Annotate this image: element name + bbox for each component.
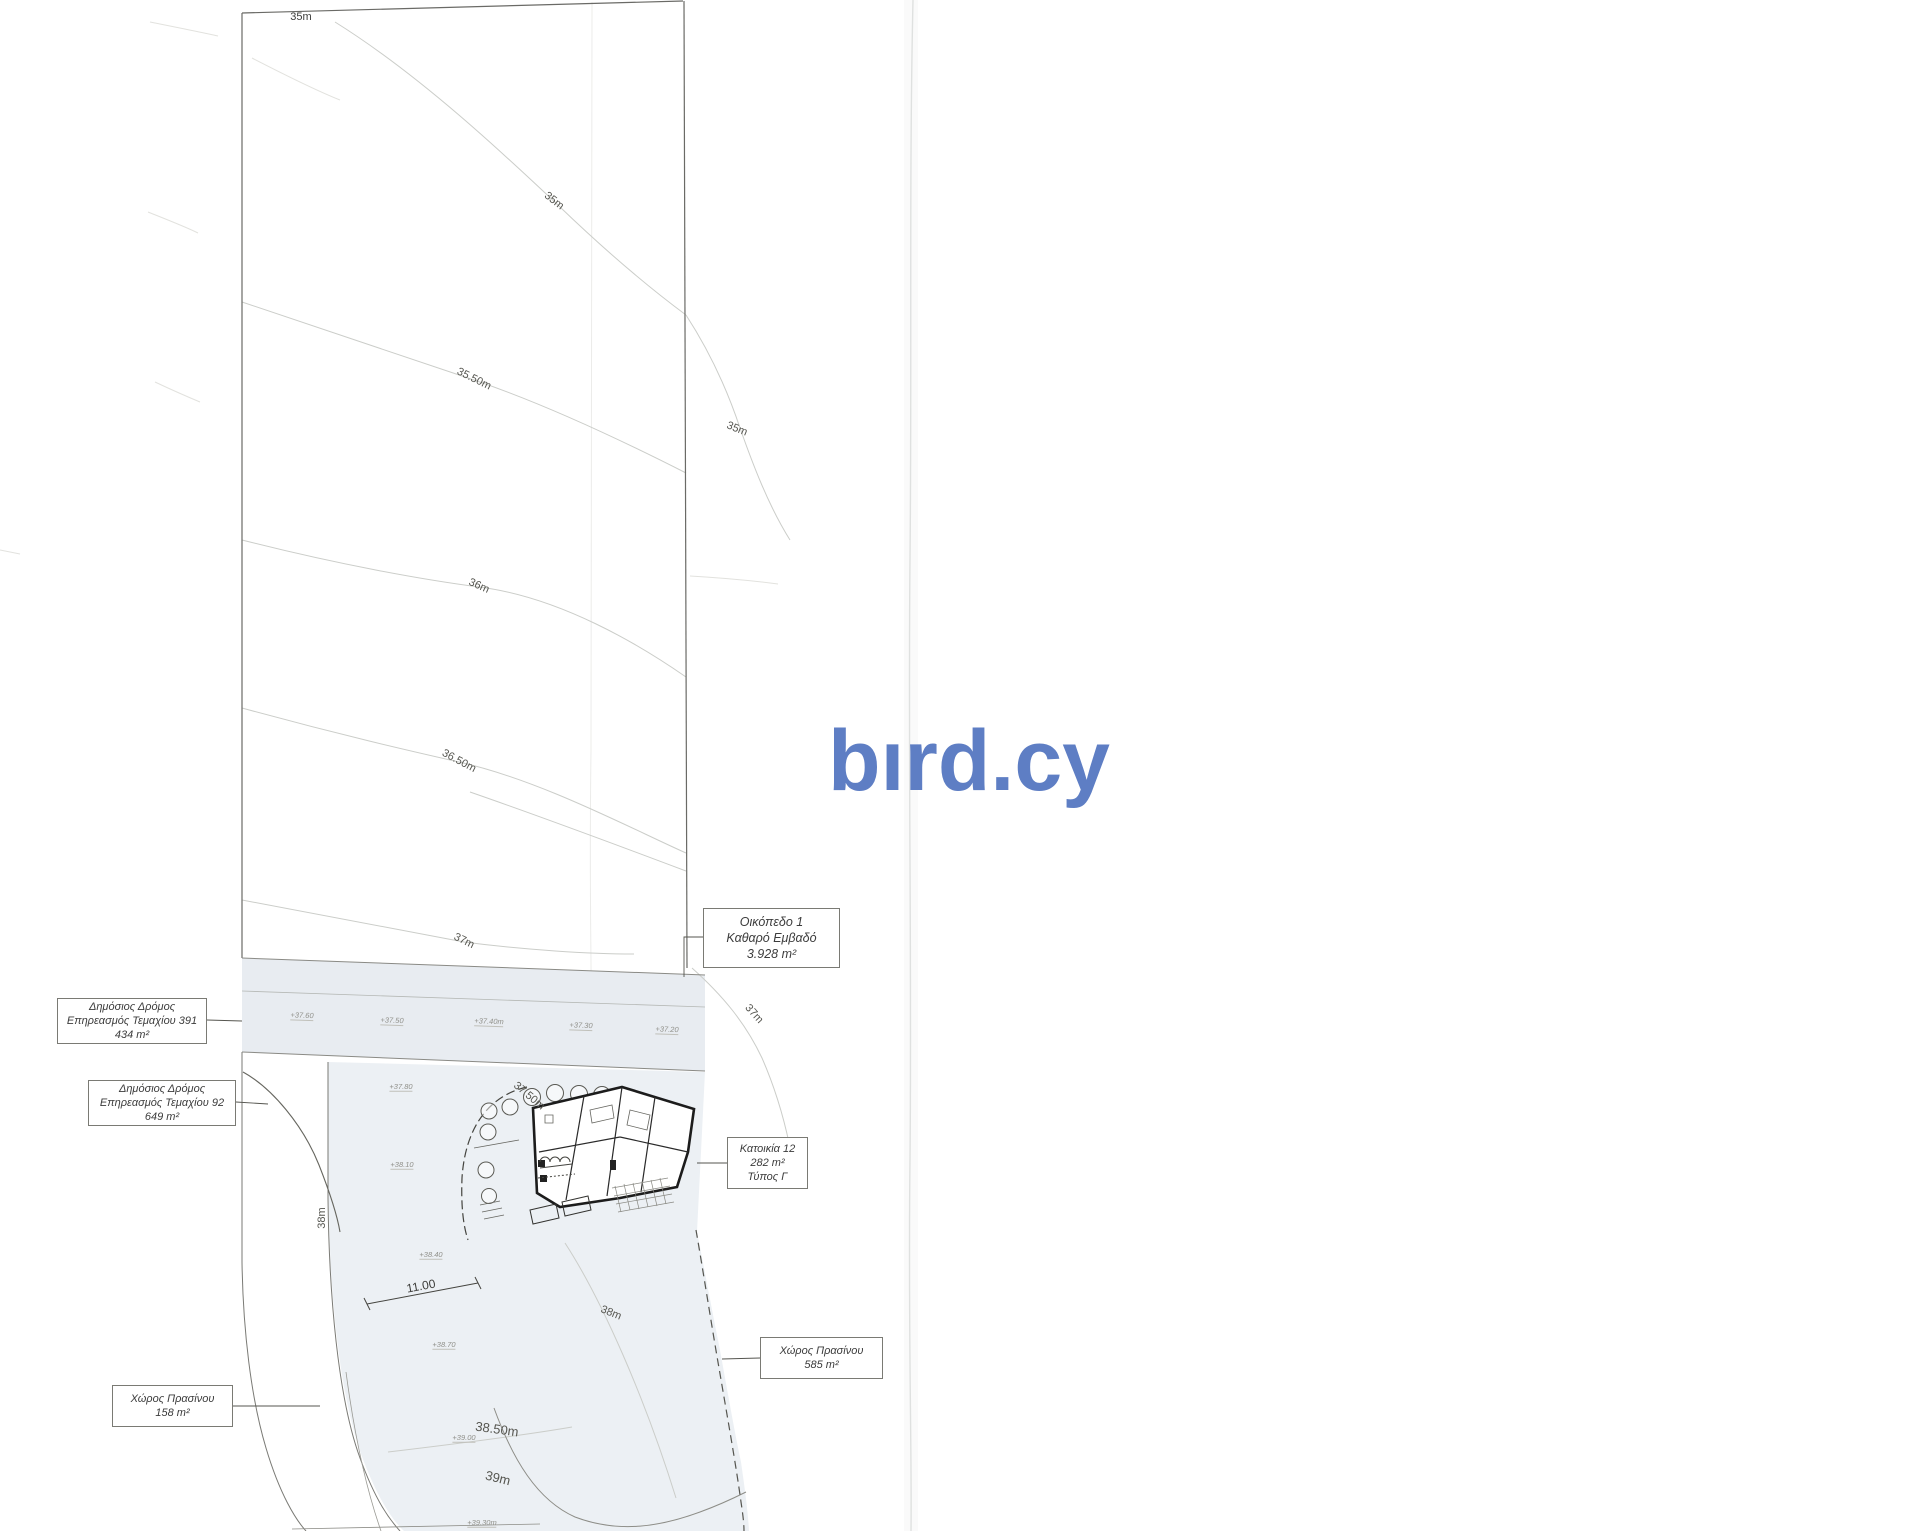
spot-elevation: +39.00	[452, 1434, 475, 1443]
label-line: Οικόπεδο 1	[708, 914, 835, 930]
spot-elevation: +37.40m	[474, 1017, 504, 1027]
spot-elevation: +37.80	[389, 1083, 412, 1092]
spot-elevation: +37.50	[380, 1016, 403, 1025]
spot-elevation: +37.20	[655, 1025, 678, 1034]
bird-cy-watermark-logo: bırd.cy	[828, 718, 1110, 804]
spot-elevation: +38.40	[419, 1251, 442, 1260]
boundary-length-label: 35m	[290, 11, 311, 23]
margin-faint-lines	[0, 22, 778, 584]
label-line: 649 m²	[93, 1110, 231, 1124]
label-line: Επηρεασμός Τεμαχίου 391	[62, 1014, 202, 1028]
site-plan-sheet: bırd.cy 35m 35m 35m 35.50m 36m 36.50m 37…	[0, 0, 1920, 1531]
plot-boundary	[242, 1, 687, 968]
label-line: Τύπος Γ	[732, 1170, 803, 1184]
label-line: Καθαρό Εμβαδό	[708, 930, 835, 946]
label-box-house-12: Κατοικία 12 282 m² Τύπος Γ	[727, 1137, 808, 1189]
label-line: 434 m²	[62, 1028, 202, 1042]
label-box-plot-1: Οικόπεδο 1 Καθαρό Εμβαδό 3.928 m²	[703, 908, 840, 968]
scan-fold-line-mid	[590, 2, 592, 1010]
label-line: 282 m²	[732, 1156, 803, 1170]
label-box-road-92: Δημόσιος Δρόμος Επηρεασμός Τεμαχίου 92 6…	[88, 1080, 236, 1126]
label-box-green-158: Χώρος Πρασίνου 158 m²	[112, 1385, 233, 1427]
spot-elevation: +38.10	[390, 1161, 413, 1170]
label-line: Επηρεασμός Τεμαχίου 92	[93, 1096, 231, 1110]
label-line: Δημόσιος Δρόμος	[62, 1000, 202, 1014]
label-box-green-585: Χώρος Πρασίνου 585 m²	[760, 1337, 883, 1379]
label-line: 158 m²	[117, 1406, 228, 1420]
label-box-road-391: Δημόσιος Δρόμος Επηρεασμός Τεμαχίου 391 …	[57, 998, 207, 1044]
label-line: Χώρος Πρασίνου	[765, 1344, 878, 1358]
label-line: 585 m²	[765, 1358, 878, 1372]
label-line: Κατοικία 12	[732, 1142, 803, 1156]
label-line: 3.928 m²	[708, 946, 835, 962]
spot-elevation: +39.30m	[467, 1519, 496, 1528]
spot-elevation: +38.70	[432, 1341, 455, 1350]
spot-elevation: +37.60	[290, 1011, 313, 1020]
spot-elevation: +37.30	[569, 1021, 592, 1030]
label-line: Χώρος Πρασίνου	[117, 1392, 228, 1406]
contour-label-38m-left: 38m	[316, 1207, 328, 1228]
label-line: Δημόσιος Δρόμος	[93, 1082, 231, 1096]
